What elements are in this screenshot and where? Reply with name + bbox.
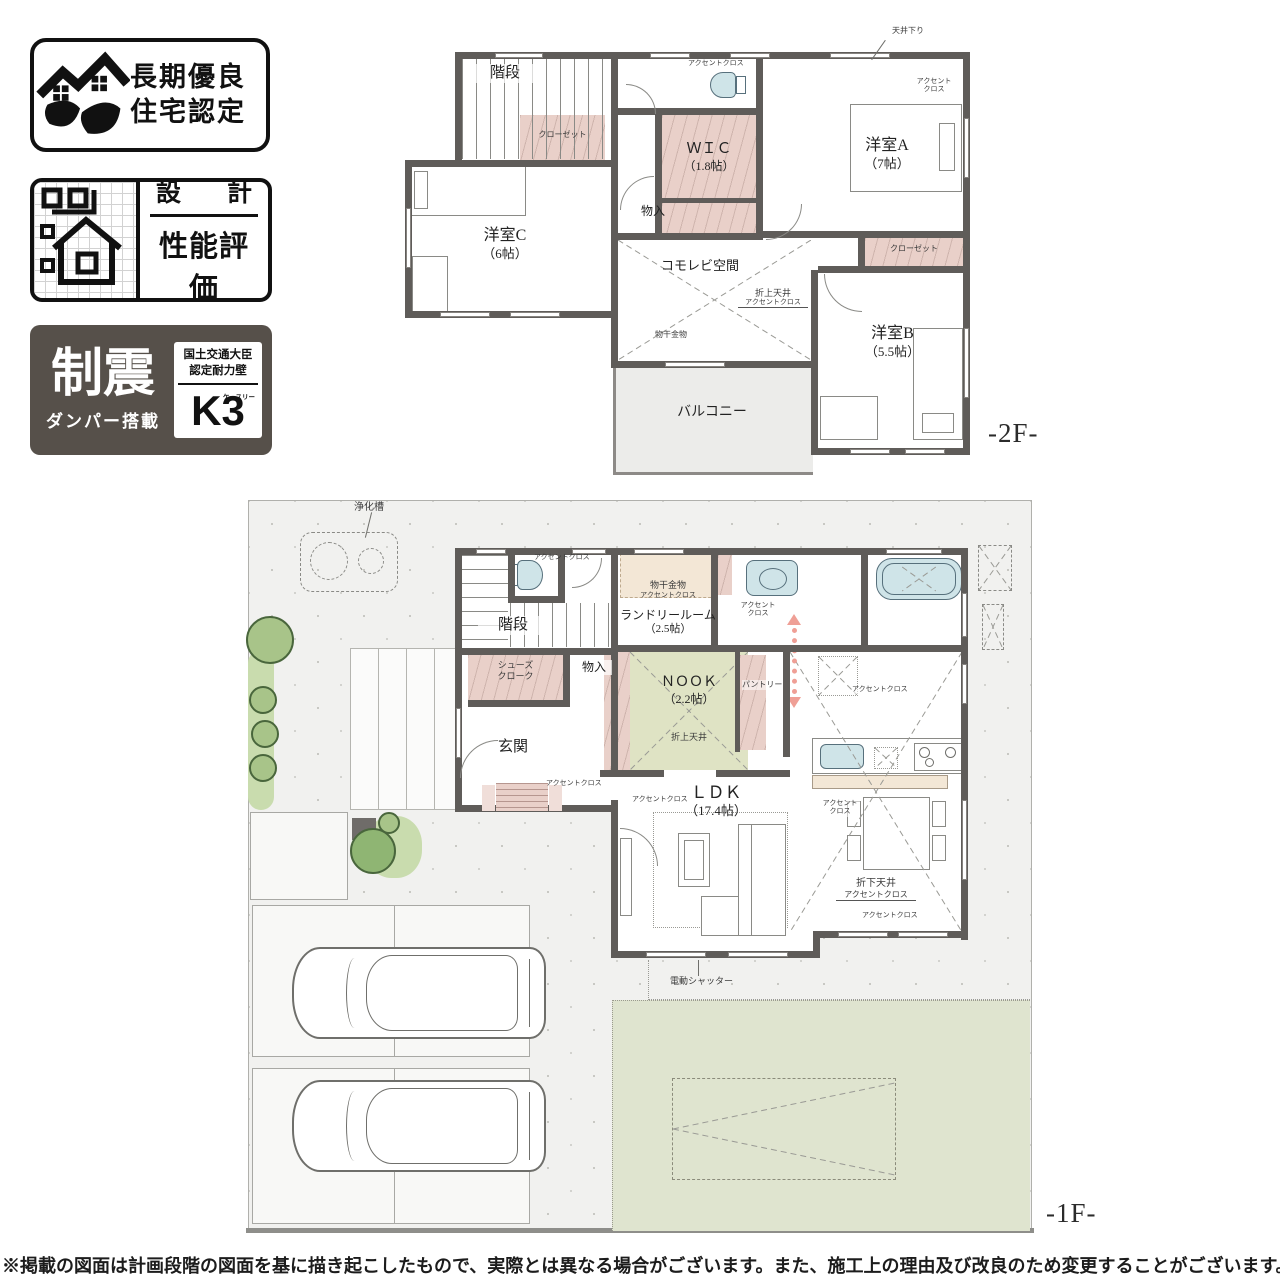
balcony-label: バルコニー [652, 404, 772, 422]
badge-cert-line2: 認定耐力壁 [178, 364, 258, 380]
badge-seismic-subtitle: ダンパー搭載 [36, 407, 170, 432]
bathtub-icon [876, 558, 962, 600]
car-2 [292, 1080, 546, 1172]
driveway [250, 812, 348, 900]
planting-zone [672, 1078, 896, 1180]
floor2-tag: -2F- [988, 418, 1039, 449]
storage-2f-label: 物入 [628, 204, 678, 219]
design-evaluation-badge: 設 計 性能評価 [30, 178, 272, 302]
balcony-area [613, 368, 813, 475]
badge-cert-line1: 国土交通大臣 [178, 348, 258, 364]
dropped-ceiling-label: 折下天井アクセントクロス [836, 878, 916, 901]
floor1-tag: -1F- [1046, 1198, 1097, 1229]
tree-small [249, 754, 277, 782]
coffee-table [678, 833, 710, 887]
tree-small [249, 686, 277, 714]
shutter-label: 電動シャッター [670, 976, 733, 987]
tree-large [246, 616, 294, 664]
longterm-housing-badge: 長期優良 住宅認定 [30, 38, 270, 152]
outdoor-unit [978, 545, 1012, 591]
entrance-label: 玄関 [478, 738, 548, 757]
toilet-2f-icon [710, 72, 736, 98]
badge-design-bottom: 性能評価 [150, 223, 258, 302]
washbasin-icon [746, 560, 798, 596]
pantry-label: パントリー [742, 680, 782, 690]
k3-certification-mark: 国土交通大臣 認定耐力壁 K3ケースリー [174, 342, 262, 438]
tree-porch [350, 828, 396, 874]
nook-label: ＮＯＯＫ（2.2帖） [630, 674, 748, 707]
tree-small [251, 720, 279, 748]
accent-cloth-room-a-label: アクセントクロス [908, 78, 960, 95]
accent-cloth-toilet1f-label: アクセントクロス [534, 554, 590, 562]
disclaimer-text: ※掲載の図面は計画段階の図面を基に描き起こしたもので、実際とは異なる場合がござい… [2, 1252, 1280, 1278]
badge-design-char1: 設 [156, 178, 181, 209]
sofa-chaise [701, 896, 739, 936]
k3-logo-kana: ケースリー [223, 395, 255, 402]
laundry-room-label: ランドリールーム（2.5帖） [606, 608, 730, 637]
desk-room-c [412, 256, 448, 312]
closet-b-label: クローゼット [865, 244, 963, 254]
dining-accent-label: アクセントクロス [820, 800, 860, 817]
hall-accent-label: アクセントクロス [546, 780, 602, 788]
tree-porch-small [378, 812, 400, 834]
floor2-plan: 階段 クローゼット アクセントクロス ＷＩＣ（1.8帖） 物入 天井下り 洋室A… [400, 28, 1000, 488]
bed-room-c [408, 164, 526, 216]
badge-seismic-title: 制震 [36, 349, 170, 401]
sofa [738, 824, 786, 936]
stairs-2f-label: 階段 [470, 64, 540, 83]
badge-longterm-line1: 長期優良 [130, 60, 246, 95]
laundry-bar-1f-label: 物干金物 [620, 580, 716, 591]
washroom-accent-label: アクセントクロス [736, 602, 780, 619]
flow-arrow-up [787, 614, 801, 625]
septic-tank-label: 浄化槽 [354, 502, 384, 514]
closet-c-label: クローゼット [520, 130, 605, 140]
flow-arrow-line [792, 628, 797, 694]
room-c-label: 洋室C（6帖） [445, 226, 565, 262]
desk-room-b [820, 396, 878, 440]
stairs-1f-label: 階段 [478, 616, 548, 635]
komorebi-label: コモレビ空間 [635, 258, 765, 274]
laundry-accent-label: アクセントクロス [620, 592, 716, 600]
nook-coved-label: 折上天井 [630, 732, 748, 743]
room-a-label: 洋室A（7帖） [828, 136, 946, 172]
fridge-accent-label: アクセントクロス [852, 686, 908, 694]
ldk-accent-left-label: アクセントクロス [632, 796, 688, 804]
seismic-damper-badge: 制震 ダンパー搭載 国土交通大臣 認定耐力壁 K3ケースリー [30, 325, 272, 455]
ceiling-down-label: 天井下り [892, 26, 924, 36]
washroom-accent-wall [718, 555, 732, 595]
house-blueprint-logo-icon [34, 182, 140, 298]
toilet-1f-icon [517, 560, 543, 590]
room-b-label: 洋室B（5.5帖） [835, 324, 950, 360]
laundry-bar-2f-label: 物干金物 [655, 330, 687, 340]
entrance-porch-steps [496, 783, 548, 811]
accent-cloth-toilet2f-label: アクセントクロス [688, 60, 744, 68]
badge-design-char2: 計 [227, 178, 252, 209]
storage-1f-label: 物入 [576, 660, 612, 675]
badge-longterm-line2: 住宅認定 [130, 95, 246, 130]
k3-logo: K3ケースリー [178, 383, 258, 432]
wic-label: ＷＩＣ（1.8帖） [662, 140, 756, 174]
outdoor-unit-2 [982, 604, 1004, 650]
ldk-accent-bottom-label: アクセントクロス [862, 912, 918, 920]
floorplan-sheet: 長期優良 住宅認定 設 計 性能評価 [0, 0, 1280, 1280]
shoes-closet-label: シューズクローク [468, 660, 563, 682]
nook-room [630, 652, 748, 770]
house-leaf-logo-icon [34, 45, 130, 145]
coved-ceiling-2f-label: 折上天井アクセントクロス [738, 288, 808, 308]
floor1-site-plan: 浄化槽 [246, 498, 1034, 1236]
car-1 [292, 947, 546, 1039]
